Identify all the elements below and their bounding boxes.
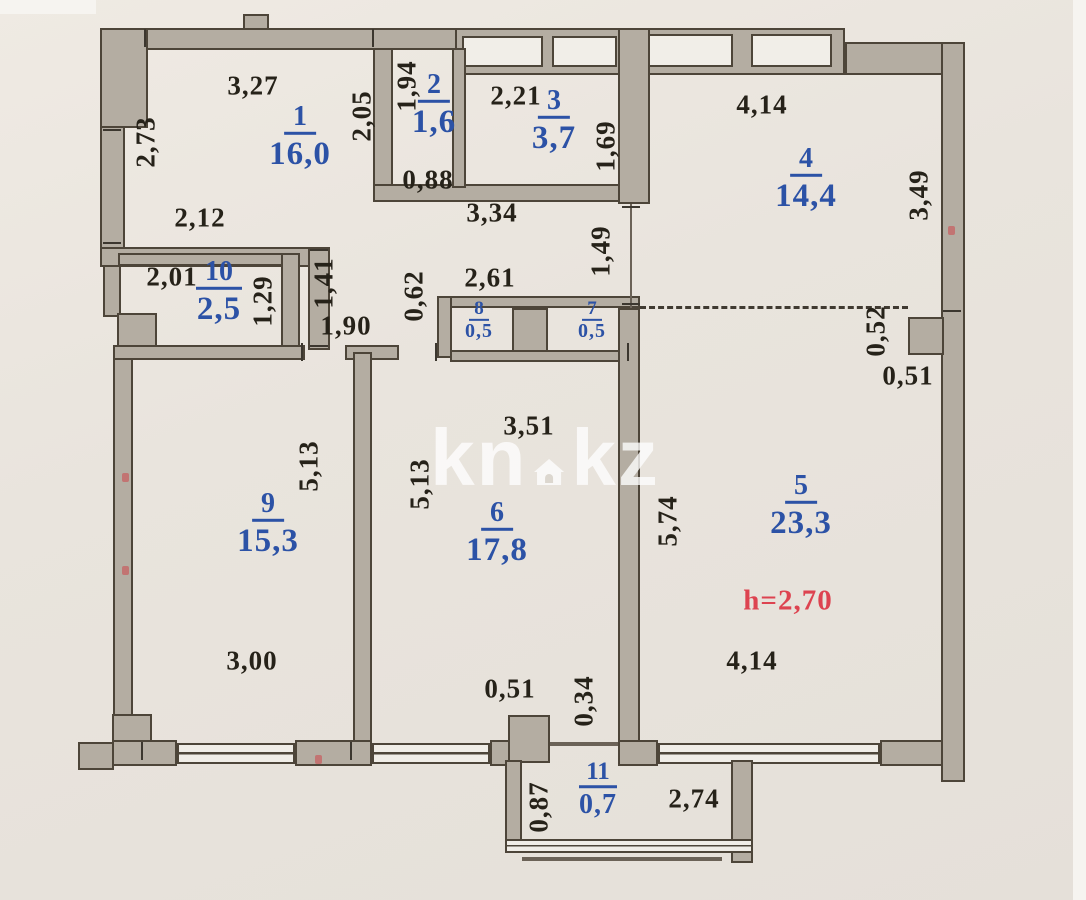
wall-segment [281, 253, 300, 352]
wall-segment [618, 740, 658, 766]
room-6-label: 617,8 [466, 498, 528, 568]
room-area: 15,3 [237, 524, 299, 559]
watermark-text-right: kz [571, 412, 660, 504]
wall-segment [112, 740, 177, 766]
wall-niche [552, 36, 617, 67]
wall-segment [100, 28, 148, 128]
dimension-label: 2,74 [668, 784, 719, 815]
dimension-tick [943, 310, 961, 312]
window [177, 743, 295, 764]
wall-segment [618, 28, 650, 204]
wall-segment [78, 742, 114, 770]
dimension-tick [622, 206, 640, 208]
wall-niche [751, 34, 832, 67]
room-number: 3 [538, 86, 570, 119]
balcony-door-threshold [550, 742, 620, 746]
room-area: 23,3 [770, 506, 832, 541]
dimension-tick [310, 249, 328, 251]
dimension-label: 0,88 [402, 165, 453, 196]
dimension-tick [103, 242, 121, 244]
room-number: 2 [418, 70, 450, 103]
room-number: 4 [790, 144, 822, 177]
room-area: 0,7 [579, 790, 617, 819]
room-number: 11 [579, 759, 617, 788]
room-number: 9 [252, 489, 284, 522]
dimension-label: 0,52 [861, 305, 892, 356]
dimension-label: 0,34 [569, 675, 600, 726]
dimension-label: 3,34 [466, 198, 517, 229]
dimension-label: 1,94 [392, 60, 423, 111]
room-10-label: 102,5 [196, 257, 242, 327]
wall-segment [512, 308, 548, 352]
floor-plan: kn kz h=2,70 116,021,633,7414,4523,3617,… [0, 0, 1086, 900]
dimension-tick [141, 742, 143, 760]
wall-segment [100, 28, 457, 50]
wall-segment [508, 715, 550, 763]
dimension-label: 4,14 [726, 646, 777, 677]
wall-segment [505, 760, 522, 850]
paper-edge-right [1073, 0, 1086, 900]
dimension-label: 2,05 [347, 90, 378, 141]
balcony-railing-line [522, 857, 722, 861]
room-9-label: 915,3 [237, 489, 299, 559]
wall-segment [618, 308, 640, 742]
dimension-tick [144, 29, 146, 47]
dimension-label: 2,12 [174, 203, 225, 234]
dimension-line [630, 204, 632, 308]
dimension-tick [622, 303, 640, 305]
dimension-tick [301, 343, 303, 361]
dimension-label: 1,41 [309, 257, 340, 308]
room-area: 17,8 [466, 533, 528, 568]
wall-segment [113, 345, 305, 360]
room-area: 0,5 [465, 321, 493, 342]
dimension-label: 3,49 [904, 169, 935, 220]
dimension-label: 2,61 [464, 263, 515, 294]
house-icon [534, 455, 564, 485]
dimension-label: 1,90 [320, 311, 371, 342]
dimension-label: 2,01 [146, 262, 197, 293]
room-area: 16,0 [269, 137, 331, 172]
room-number: 10 [196, 257, 242, 290]
room-number: 5 [785, 471, 817, 504]
wall-segment [908, 317, 944, 355]
dimension-label: 1,49 [586, 225, 617, 276]
window [658, 743, 880, 764]
wall-segment [295, 740, 372, 766]
dimension-tick [435, 343, 437, 361]
dimension-label: 3,00 [226, 646, 277, 677]
dimension-label: 1,29 [248, 275, 279, 326]
room-area: 3,7 [532, 121, 576, 156]
watermark-text-left: kn [430, 412, 527, 504]
wall-segment [880, 740, 943, 766]
room-number: 7 [582, 299, 602, 321]
balcony-railing [505, 839, 753, 853]
dimension-label: 1,69 [591, 120, 622, 171]
wall-segment [113, 348, 133, 718]
wall-niche [636, 34, 733, 67]
scan-mark [315, 755, 322, 764]
wall-segment [100, 126, 125, 255]
dimension-label: 0,51 [882, 361, 933, 392]
room-7-label: 70,5 [578, 299, 606, 342]
scan-mark [122, 566, 129, 575]
dimension-tick [372, 29, 374, 47]
wall-segment [941, 42, 965, 782]
dimension-tick [310, 345, 328, 347]
window [372, 743, 490, 764]
wall-segment [353, 352, 372, 742]
dimension-label: 0,62 [399, 270, 430, 321]
dimension-tick [627, 343, 629, 361]
room-area: 0,5 [578, 321, 606, 342]
room-number: 1 [284, 102, 316, 135]
wall-segment [437, 296, 452, 358]
dimension-label: 2,21 [490, 81, 541, 112]
dimension-label: 0,51 [484, 674, 535, 705]
dimension-tick [103, 129, 121, 131]
room-area: 2,5 [197, 292, 241, 327]
dimension-tick [350, 742, 352, 760]
dimension-label: 2,73 [131, 116, 162, 167]
watermark: kn kz [430, 412, 660, 504]
room-1-label: 116,0 [269, 102, 331, 172]
room-4-label: 414,4 [775, 144, 837, 214]
room-area: 14,4 [775, 179, 837, 214]
dimension-label: 5,13 [294, 440, 325, 491]
room-number: 8 [469, 299, 489, 321]
wall-niche [462, 36, 543, 67]
scan-mark [122, 473, 129, 482]
paper-edge-top [0, 0, 96, 14]
dimension-label: 4,14 [736, 90, 787, 121]
scan-mark [948, 226, 955, 235]
room-11-label: 110,7 [579, 759, 617, 820]
dimension-label: 3,27 [227, 71, 278, 102]
ceiling-height-label: h=2,70 [743, 585, 832, 618]
room-8-label: 80,5 [465, 299, 493, 342]
dimension-label: 0,87 [524, 781, 555, 832]
room-5-label: 523,3 [770, 471, 832, 541]
